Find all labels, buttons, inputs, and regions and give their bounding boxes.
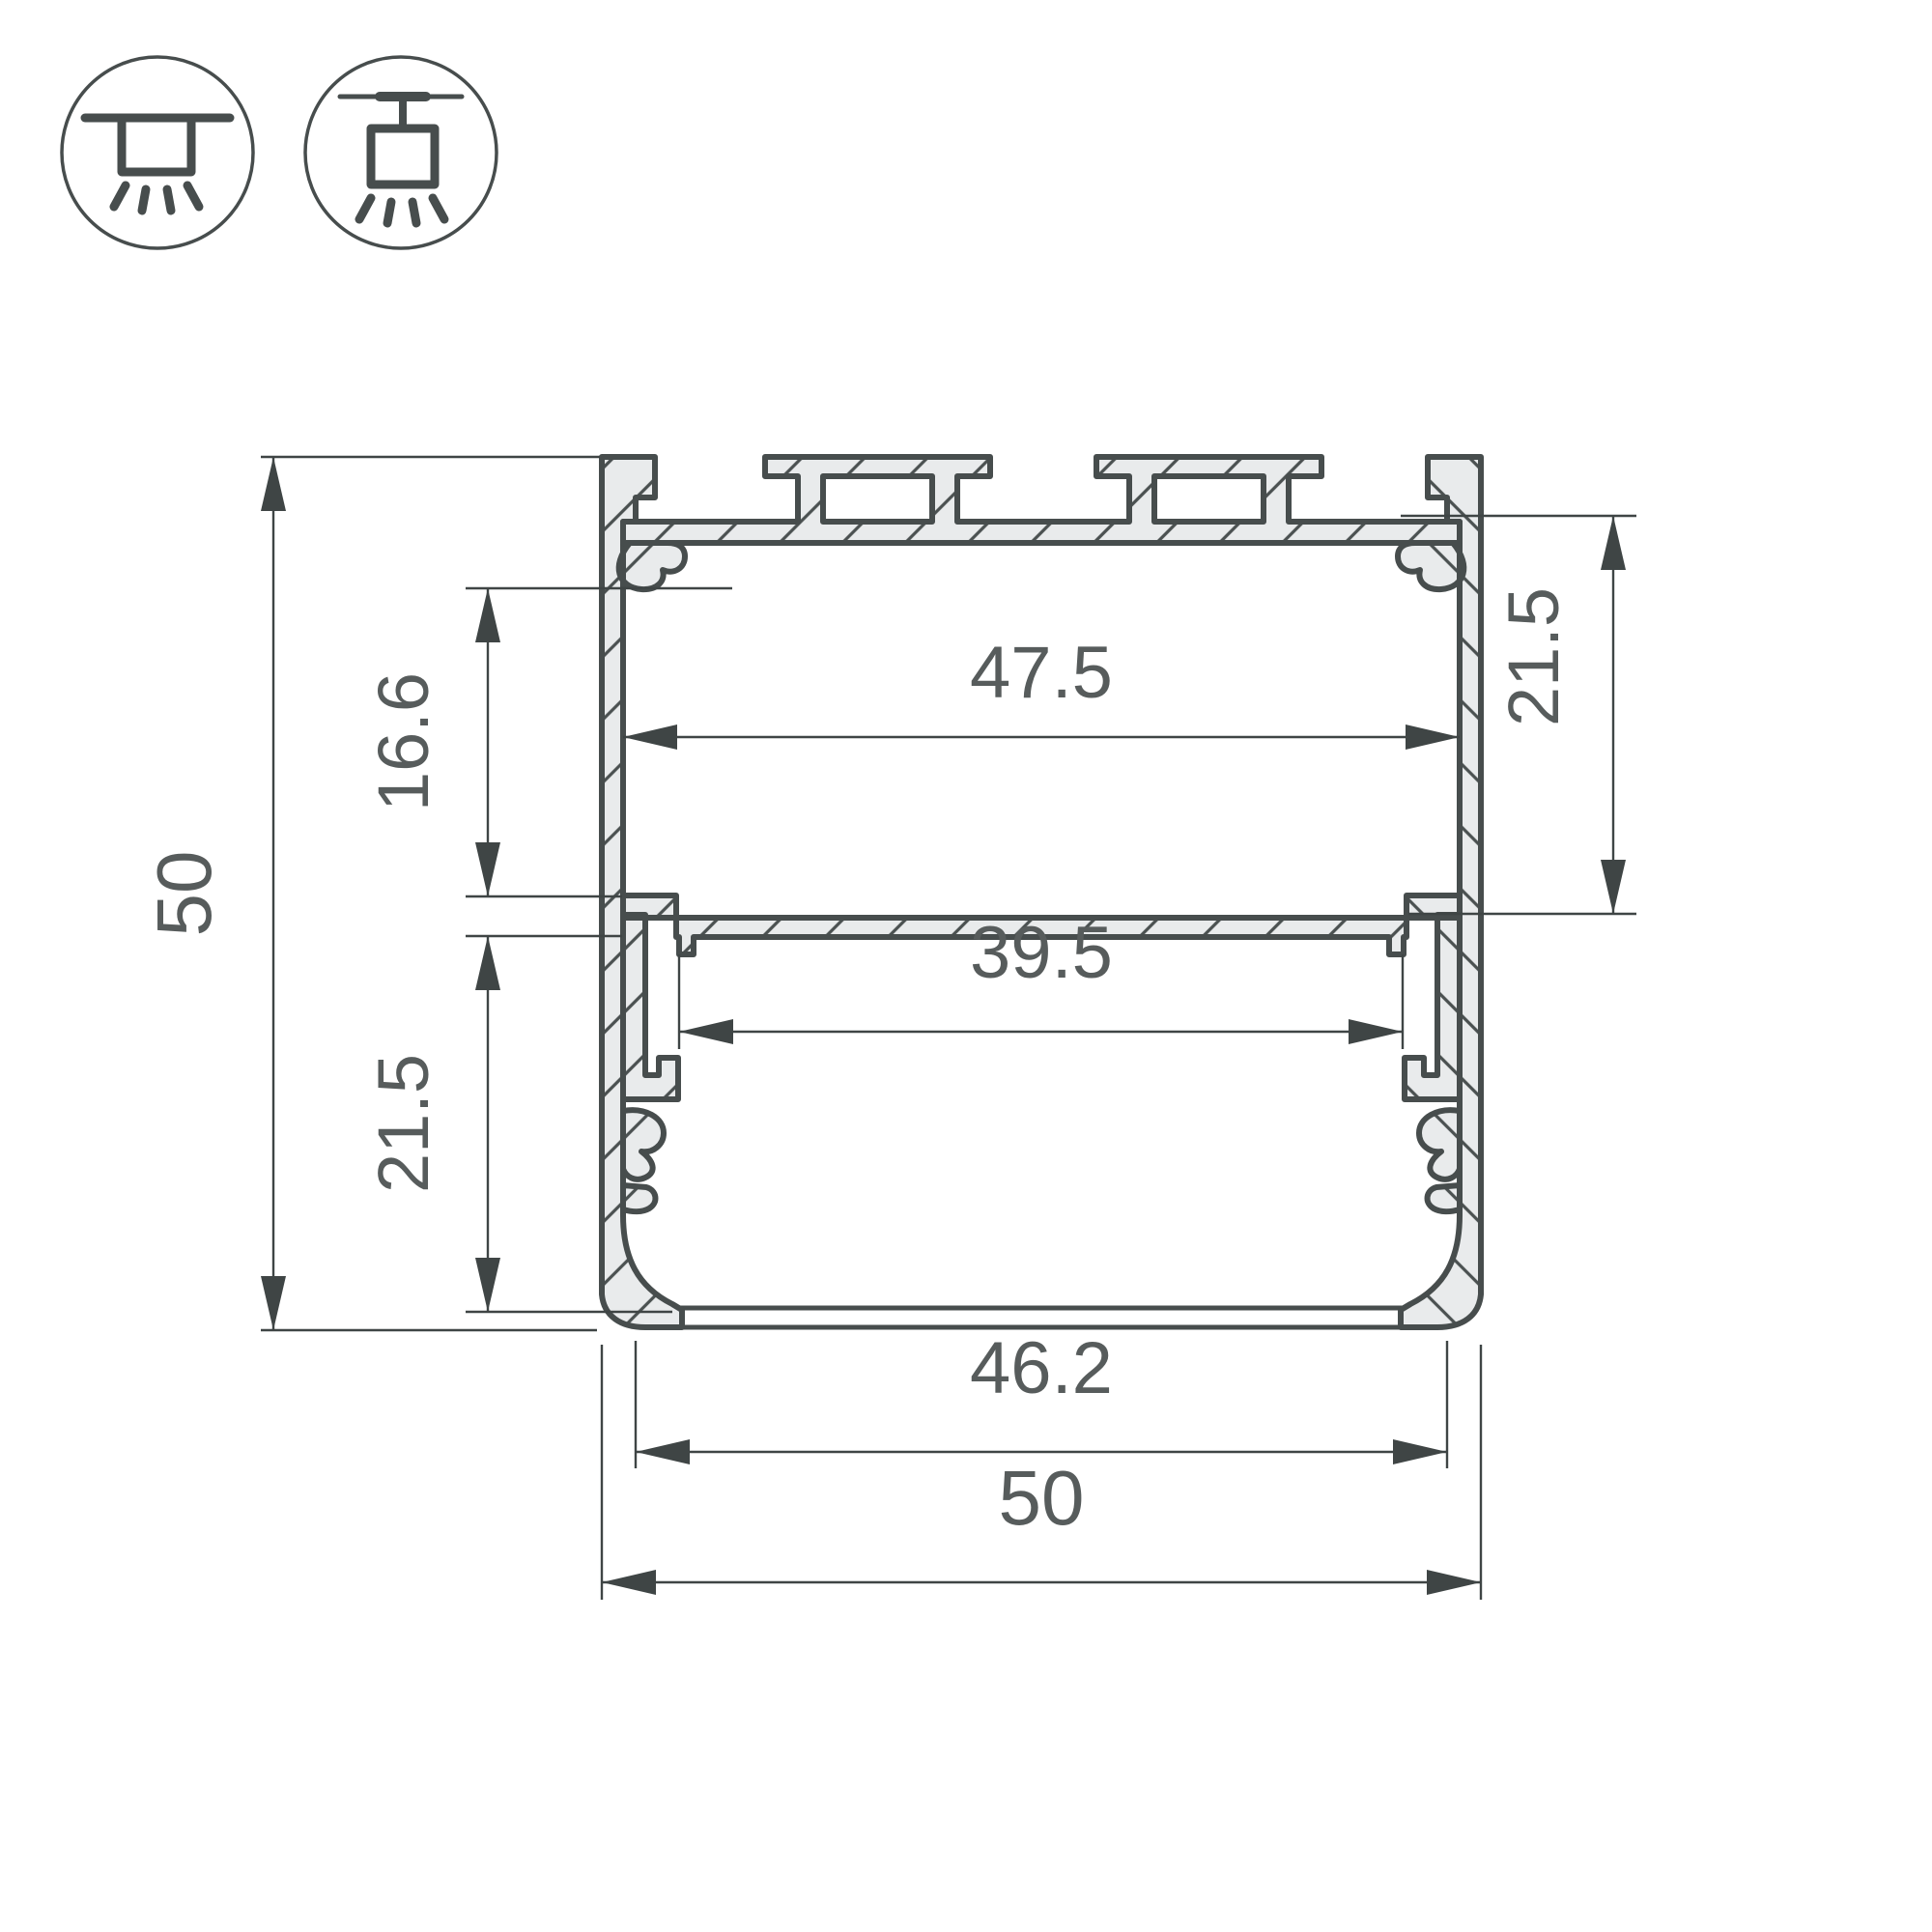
label-overall-height: 50	[141, 851, 227, 937]
dimension-labels: 50 16.6 21.5 47.5 39.5 21.5 46.2 50	[141, 587, 1574, 1541]
dimension-annotations	[261, 457, 1636, 1600]
ceiling-pendant-mount-icon	[305, 57, 497, 248]
profile-body	[602, 457, 1481, 1327]
label-bottom-opening-width: 46.2	[970, 1327, 1113, 1409]
label-upper-chamber-height: 16.6	[363, 672, 443, 811]
ceiling-surface-mount-icon	[62, 57, 253, 248]
diffuser-plate	[665, 1308, 1418, 1327]
label-shelf-opening-width: 39.5	[970, 912, 1113, 994]
dimension-upper-inner-width	[623, 724, 1460, 750]
label-overall-width: 50	[999, 1455, 1085, 1541]
label-right-chamber-height: 21.5	[1493, 587, 1574, 726]
profile-cross-section-drawing: 50 16.6 21.5 47.5 39.5 21.5 46.2 50	[0, 0, 1932, 1932]
label-upper-inner-width: 47.5	[970, 632, 1113, 714]
mount-type-icons	[62, 57, 497, 248]
drawing-page: 50 16.6 21.5 47.5 39.5 21.5 46.2 50	[0, 0, 1932, 1932]
label-lower-chamber-height: 21.5	[363, 1054, 443, 1193]
